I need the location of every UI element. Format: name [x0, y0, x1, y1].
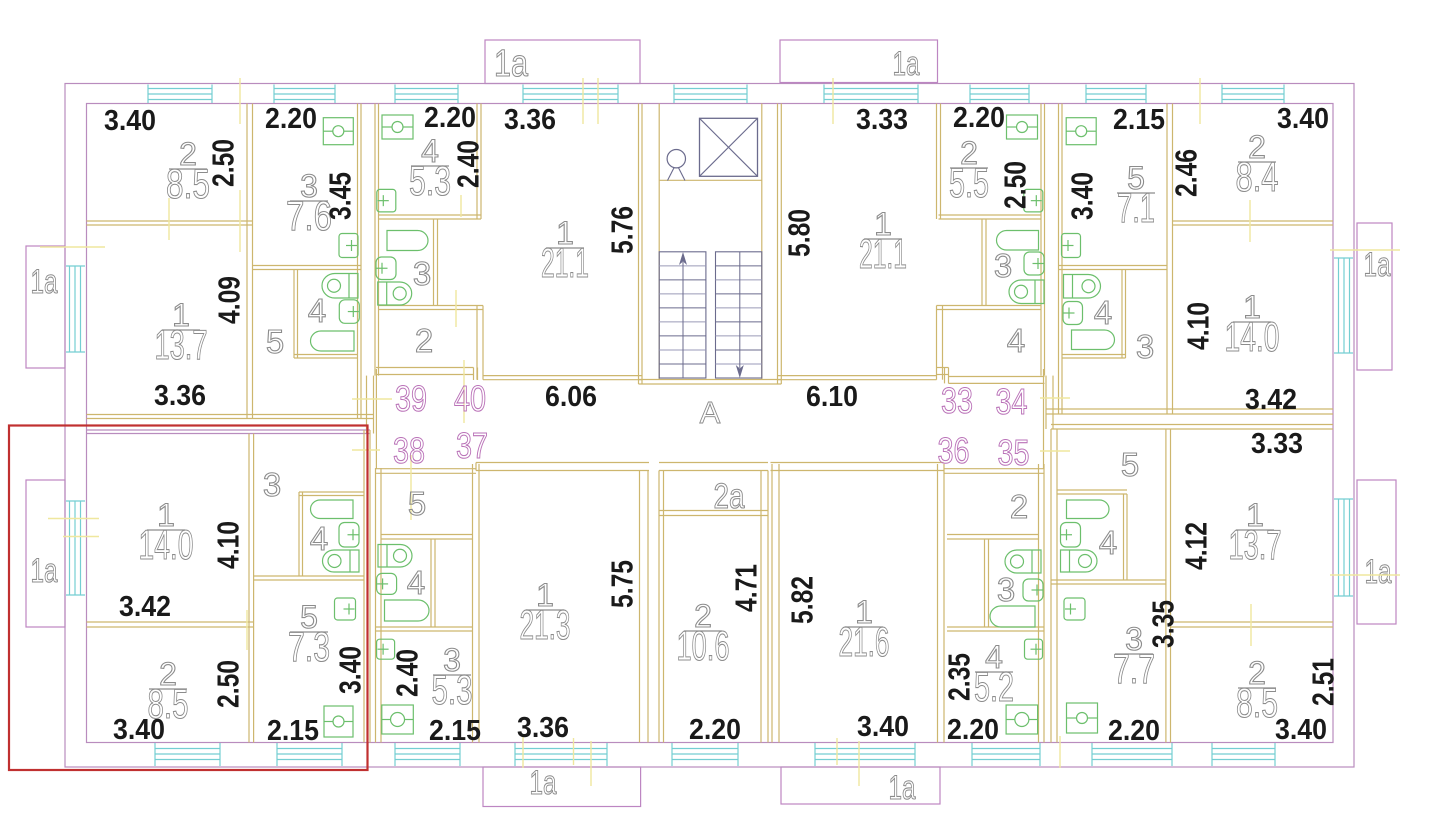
svg-text:14.0: 14.0 — [1225, 313, 1280, 360]
svg-text:2.20: 2.20 — [265, 103, 317, 135]
svg-text:1a: 1a — [889, 769, 916, 807]
svg-text:2.20: 2.20 — [953, 102, 1005, 134]
svg-text:3.42: 3.42 — [1245, 384, 1297, 416]
svg-text:4.10: 4.10 — [211, 521, 246, 569]
svg-text:3.35: 3.35 — [1146, 600, 1181, 648]
svg-text:5.5: 5.5 — [949, 159, 989, 206]
svg-text:3.40: 3.40 — [857, 711, 909, 743]
svg-text:13.7: 13.7 — [155, 321, 208, 368]
svg-text:3.36: 3.36 — [154, 380, 206, 412]
svg-text:7.3: 7.3 — [288, 623, 330, 670]
svg-text:4: 4 — [310, 520, 328, 557]
svg-text:2.20: 2.20 — [947, 714, 999, 746]
svg-text:1a: 1a — [31, 263, 58, 301]
svg-text:8.4: 8.4 — [1236, 153, 1279, 200]
svg-text:2.20: 2.20 — [424, 102, 476, 134]
svg-text:2.50: 2.50 — [206, 139, 241, 187]
svg-text:39: 39 — [395, 378, 427, 419]
svg-text:36: 36 — [938, 430, 970, 471]
svg-text:3.40: 3.40 — [1277, 103, 1329, 135]
svg-text:21.3: 21.3 — [520, 601, 571, 648]
svg-text:6.06: 6.06 — [545, 381, 597, 413]
svg-text:4: 4 — [1099, 524, 1117, 561]
svg-text:21.1: 21.1 — [859, 230, 907, 277]
svg-text:8.5: 8.5 — [148, 680, 189, 727]
svg-text:10.6: 10.6 — [677, 622, 730, 669]
svg-text:5.80: 5.80 — [782, 209, 817, 257]
svg-text:5.2: 5.2 — [974, 663, 1014, 710]
svg-text:34: 34 — [996, 381, 1028, 422]
svg-text:3.42: 3.42 — [119, 591, 171, 623]
svg-text:2: 2 — [1010, 488, 1028, 525]
svg-text:2.50: 2.50 — [211, 660, 246, 708]
svg-text:35: 35 — [998, 432, 1030, 473]
svg-text:4: 4 — [1094, 294, 1112, 331]
svg-text:4: 4 — [1007, 322, 1025, 359]
svg-text:3: 3 — [994, 247, 1012, 284]
svg-text:4: 4 — [308, 292, 326, 329]
svg-text:2.35: 2.35 — [942, 653, 977, 701]
svg-text:3.33: 3.33 — [1251, 428, 1303, 460]
svg-text:5.75: 5.75 — [605, 560, 640, 608]
svg-text:7.6: 7.6 — [286, 192, 332, 239]
svg-text:3: 3 — [1136, 328, 1154, 365]
svg-text:3: 3 — [413, 255, 431, 292]
svg-text:3: 3 — [263, 466, 281, 503]
svg-text:38: 38 — [393, 430, 425, 471]
svg-text:3: 3 — [997, 571, 1015, 608]
svg-text:2.15: 2.15 — [267, 715, 319, 747]
svg-text:4.10: 4.10 — [1181, 302, 1216, 350]
svg-text:1a: 1a — [494, 43, 529, 85]
svg-text:1a: 1a — [530, 764, 557, 802]
svg-text:5.82: 5.82 — [785, 576, 820, 624]
svg-text:40: 40 — [454, 378, 486, 419]
svg-text:3.40: 3.40 — [333, 646, 368, 694]
svg-text:2a: 2a — [714, 477, 745, 516]
svg-text:21.1: 21.1 — [541, 239, 589, 286]
svg-text:2.15: 2.15 — [1113, 104, 1165, 136]
svg-text:3.36: 3.36 — [517, 712, 569, 744]
svg-text:2.50: 2.50 — [998, 161, 1033, 209]
svg-text:2.20: 2.20 — [1108, 715, 1160, 747]
svg-text:3.40: 3.40 — [1275, 714, 1327, 746]
svg-text:3.40: 3.40 — [1065, 172, 1100, 220]
svg-text:4.71: 4.71 — [729, 564, 764, 612]
svg-text:5: 5 — [266, 323, 284, 360]
svg-text:6.10: 6.10 — [806, 381, 858, 413]
svg-text:2.20: 2.20 — [689, 714, 741, 746]
svg-text:5.3: 5.3 — [409, 157, 451, 204]
svg-text:21.6: 21.6 — [839, 618, 890, 665]
svg-text:3.36: 3.36 — [504, 104, 556, 136]
svg-text:2.40: 2.40 — [451, 140, 486, 188]
svg-text:1a: 1a — [1364, 246, 1391, 284]
svg-text:7.1: 7.1 — [1117, 184, 1155, 231]
svg-text:1a: 1a — [1365, 553, 1392, 591]
svg-text:2.46: 2.46 — [1169, 149, 1204, 197]
svg-text:3.40: 3.40 — [104, 105, 156, 137]
svg-text:33: 33 — [941, 380, 973, 421]
svg-text:3.33: 3.33 — [856, 104, 908, 136]
svg-text:8.5: 8.5 — [166, 160, 210, 207]
svg-text:2: 2 — [415, 322, 433, 359]
svg-text:5: 5 — [1121, 446, 1139, 483]
svg-text:2.15: 2.15 — [429, 715, 481, 747]
svg-text:2.51: 2.51 — [1306, 658, 1341, 706]
svg-text:1a: 1a — [893, 45, 920, 83]
svg-text:5: 5 — [408, 485, 426, 522]
svg-text:1a: 1a — [31, 552, 58, 590]
svg-text:37: 37 — [456, 425, 488, 466]
svg-text:7.7: 7.7 — [1113, 645, 1155, 692]
svg-text:4.09: 4.09 — [212, 276, 247, 324]
svg-text:5.76: 5.76 — [605, 206, 640, 254]
svg-text:2.40: 2.40 — [390, 649, 425, 697]
svg-text:8.5: 8.5 — [1236, 679, 1278, 726]
svg-text:4.12: 4.12 — [1179, 522, 1214, 570]
svg-text:A: A — [700, 395, 721, 430]
svg-text:14.0: 14.0 — [139, 521, 194, 568]
svg-text:4: 4 — [407, 564, 425, 601]
svg-text:5.3: 5.3 — [432, 666, 473, 713]
svg-text:13.7: 13.7 — [1229, 521, 1282, 568]
